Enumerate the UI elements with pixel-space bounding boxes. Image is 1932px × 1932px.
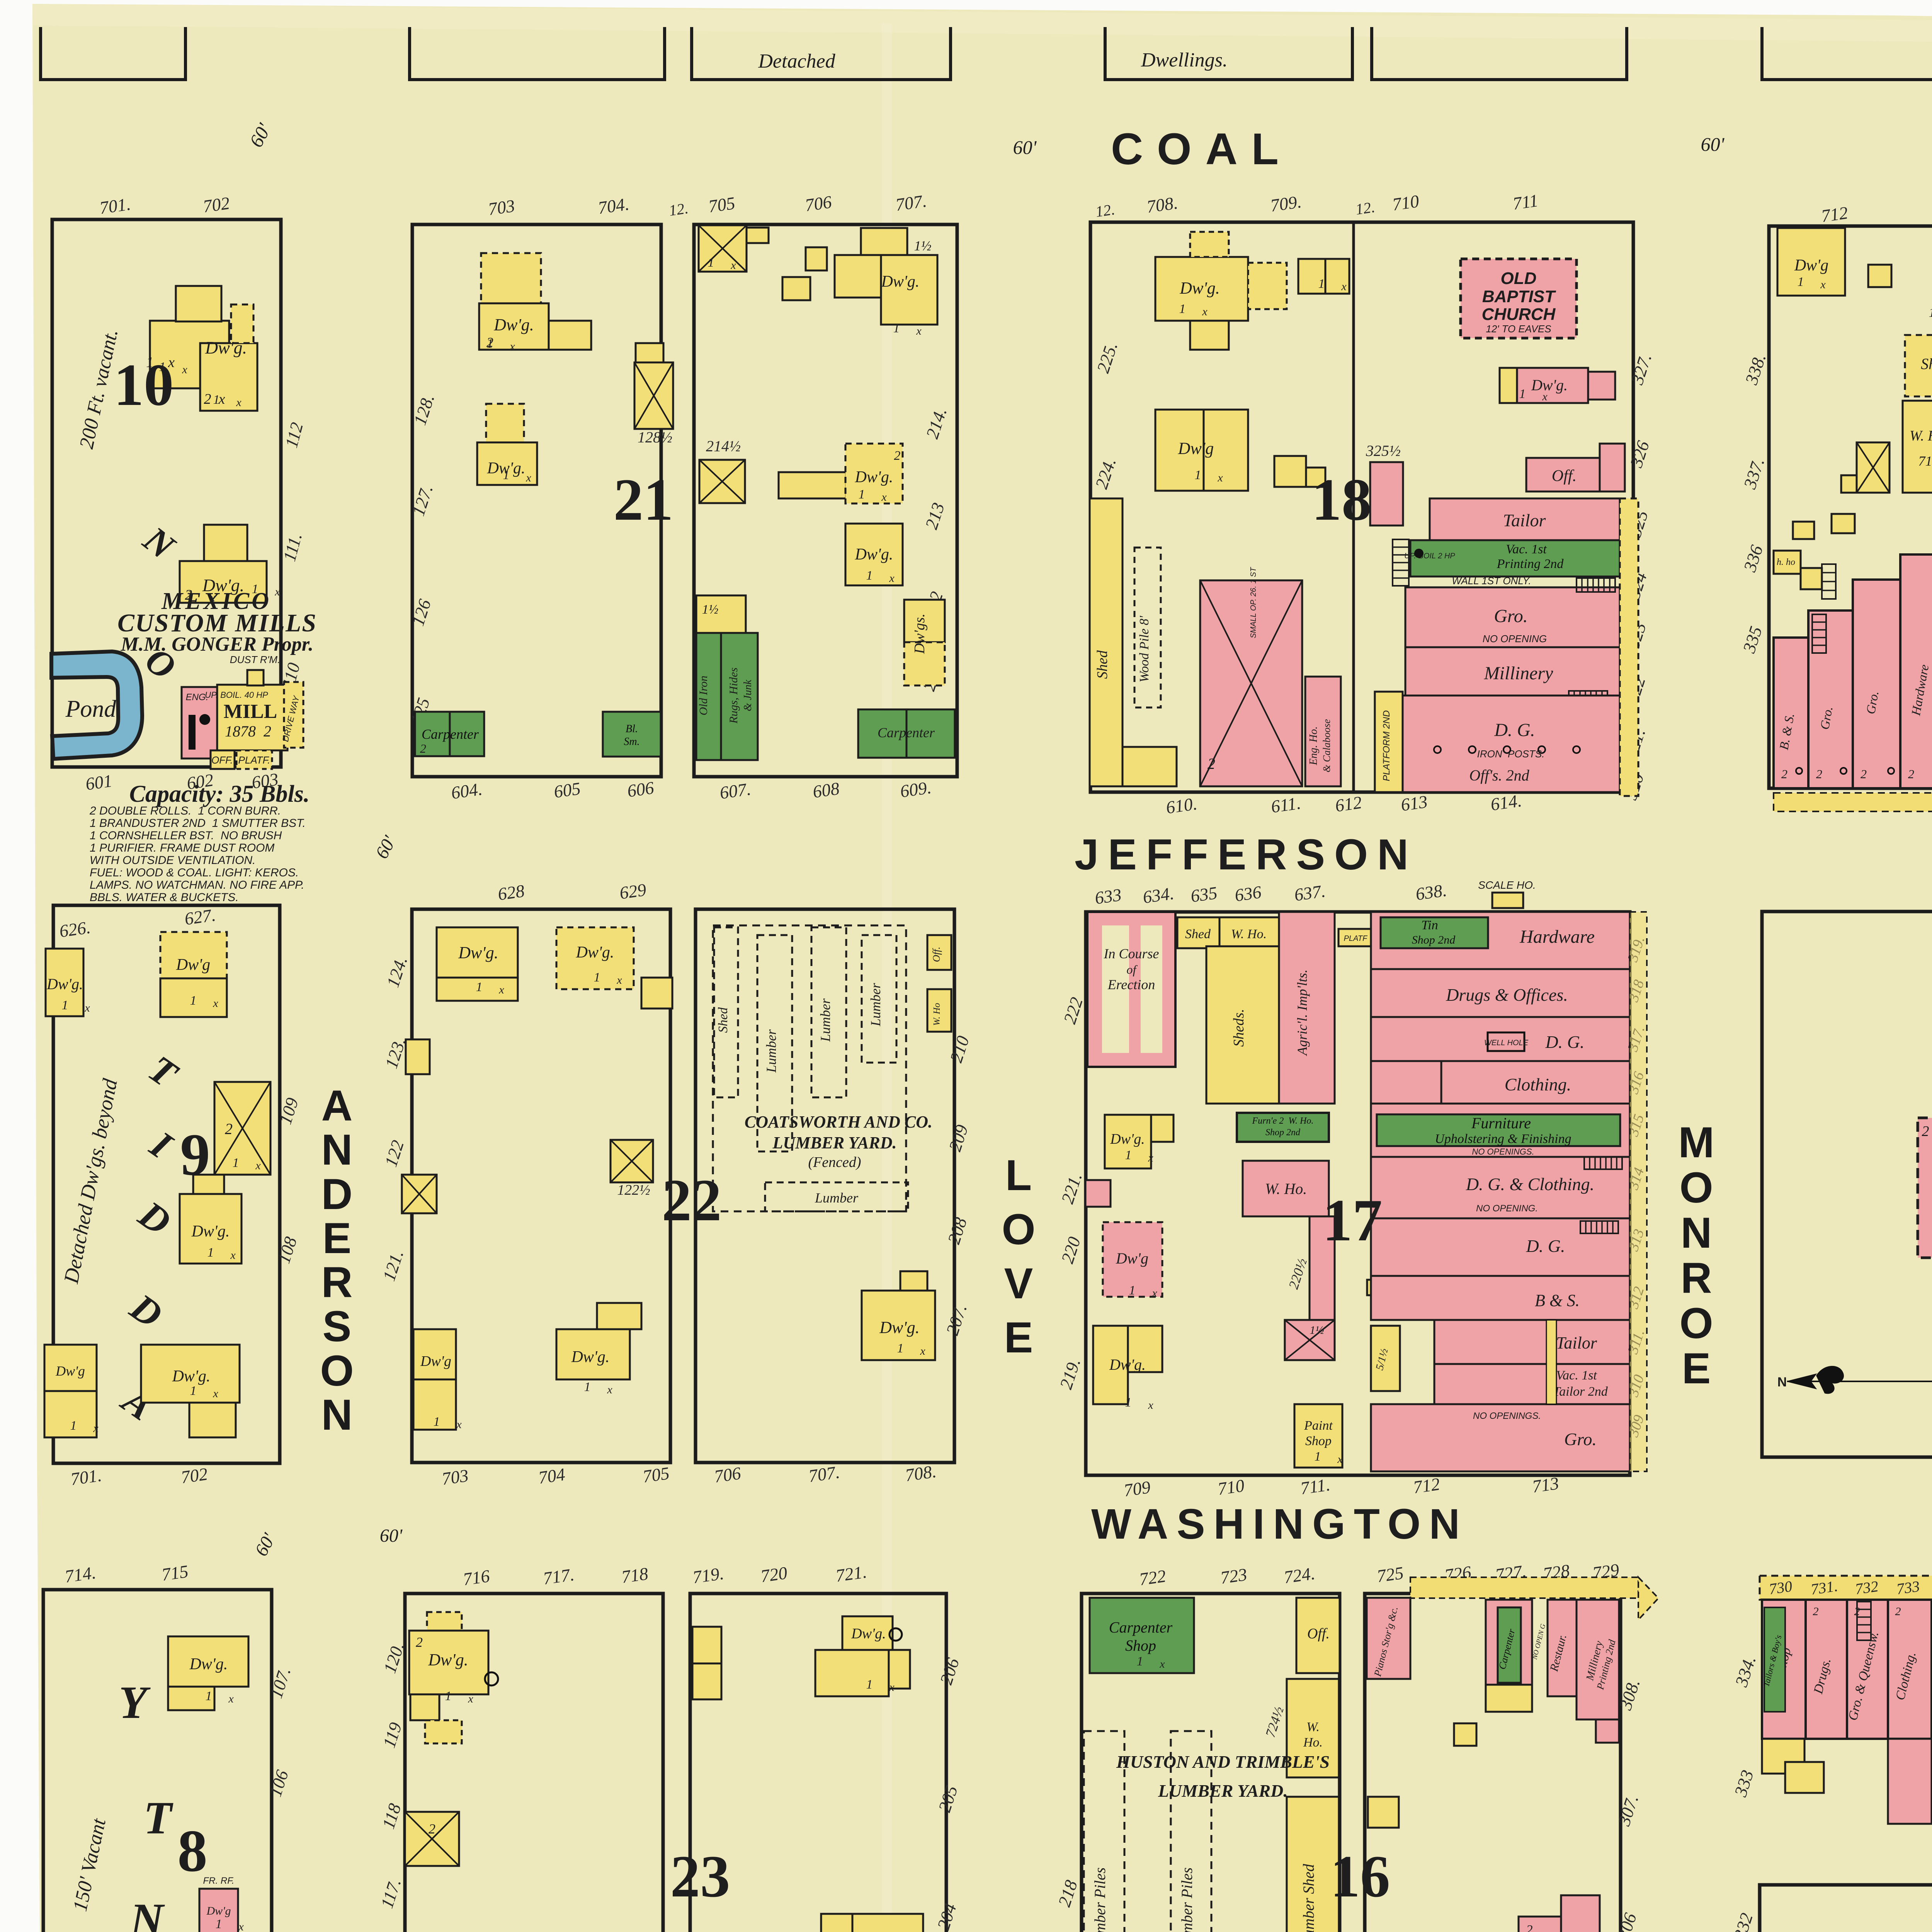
svg-text:710: 710 xyxy=(1391,191,1420,214)
svg-text:NO OPENING: NO OPENING xyxy=(1483,633,1547,645)
svg-text:WELL HOLE: WELL HOLE xyxy=(1484,1039,1529,1047)
svg-text:1878 2: 1878 2 xyxy=(225,723,271,740)
svg-text:OFF.: OFF. xyxy=(211,754,233,766)
svg-text:Dw'g.: Dw'g. xyxy=(571,1348,610,1366)
svg-text:Carpenter: Carpenter xyxy=(1109,1619,1173,1636)
svg-text:Off.: Off. xyxy=(1307,1626,1330,1642)
svg-text:MILL: MILL xyxy=(224,701,277,723)
svg-text:WALL 1ST ONLY.: WALL 1ST ONLY. xyxy=(1452,575,1531,587)
svg-text:Bl.: Bl. xyxy=(626,723,638,735)
svg-text:22: 22 xyxy=(662,1167,722,1233)
svg-text:705: 705 xyxy=(707,193,736,216)
svg-text:LAMPS. NO WATCHMAN. NO FIRE AP: LAMPS. NO WATCHMAN. NO FIRE APP. xyxy=(90,879,304,891)
svg-text:x: x xyxy=(213,1387,218,1400)
svg-text:Dw'g: Dw'g xyxy=(1178,439,1214,458)
svg-text:732: 732 xyxy=(1854,1577,1879,1598)
svg-text:Shed: Shed xyxy=(1185,927,1211,941)
svg-text:Dw'g: Dw'g xyxy=(55,1363,85,1379)
svg-text:L: L xyxy=(1005,1151,1032,1199)
svg-text:R: R xyxy=(1681,1254,1712,1302)
svg-text:N: N xyxy=(1777,1375,1787,1389)
svg-text:D. G.: D. G. xyxy=(1526,1236,1565,1256)
svg-text:2: 2 xyxy=(1816,767,1822,781)
svg-text:1: 1 xyxy=(1315,1449,1321,1464)
svg-text:M: M xyxy=(1678,1118,1714,1167)
svg-text:Shed: Shed xyxy=(1094,650,1111,679)
svg-text:x: x xyxy=(920,1345,925,1357)
svg-text:1: 1 xyxy=(487,337,493,351)
svg-text:Dw'g: Dw'g xyxy=(420,1353,451,1369)
svg-text:1: 1 xyxy=(893,321,900,335)
svg-text:16: 16 xyxy=(1330,1843,1390,1910)
svg-text:1: 1 xyxy=(1129,1283,1136,1298)
svg-text:NO OPENINGS.: NO OPENINGS. xyxy=(1472,1147,1534,1156)
svg-text:D. G. & Clothing.: D. G. & Clothing. xyxy=(1466,1174,1594,1194)
svg-text:1: 1 xyxy=(503,468,510,482)
svg-text:E: E xyxy=(1682,1344,1711,1393)
svg-text:x: x xyxy=(230,1249,236,1262)
svg-text:725: 725 xyxy=(1376,1563,1405,1586)
svg-text:1: 1 xyxy=(584,1380,591,1394)
svg-text:x: x xyxy=(498,983,504,996)
svg-text:1: 1 xyxy=(62,998,68,1012)
svg-text:128½: 128½ xyxy=(638,429,672,446)
svg-text:Tailor: Tailor xyxy=(1503,510,1546,530)
svg-text:(Fenced): (Fenced) xyxy=(808,1154,861,1170)
svg-text:x: x xyxy=(916,325,922,337)
svg-text:x: x xyxy=(730,259,736,272)
svg-text:712: 712 xyxy=(1820,203,1849,226)
svg-text:Shop 2nd: Shop 2nd xyxy=(1412,934,1456,946)
svg-text:1: 1 xyxy=(866,1677,873,1692)
svg-text:x: x xyxy=(1151,1287,1157,1299)
svg-text:713: 713 xyxy=(1531,1473,1560,1497)
svg-text:x: x xyxy=(1341,280,1347,293)
svg-text:635: 635 xyxy=(1189,883,1218,906)
svg-text:CHURCH: CHURCH xyxy=(1482,305,1556,324)
svg-text:Detached: Detached xyxy=(758,50,835,72)
svg-text:Dw'g.: Dw'g. xyxy=(851,1626,886,1642)
svg-text:8: 8 xyxy=(177,1818,207,1884)
svg-text:Agric'l. Imp'lts.: Agric'l. Imp'lts. xyxy=(1294,969,1310,1056)
svg-text:2: 2 xyxy=(1207,755,1215,772)
svg-text:Carpenter: Carpenter xyxy=(422,726,479,742)
svg-text:1: 1 xyxy=(190,993,197,1008)
svg-text:2: 2 xyxy=(420,742,426,755)
svg-text:722: 722 xyxy=(1138,1566,1167,1589)
svg-text:608: 608 xyxy=(811,779,840,802)
svg-text:12.: 12. xyxy=(668,199,689,219)
svg-text:2 DOUBLE ROLLS. 1 CORN BURR.: 2 DOUBLE ROLLS. 1 CORN BURR. xyxy=(89,804,281,817)
svg-text:Lumber: Lumber xyxy=(815,1190,859,1206)
svg-text:1: 1 xyxy=(1137,1654,1143,1668)
svg-text:x: x xyxy=(209,591,215,604)
svg-text:1: 1 xyxy=(213,393,220,407)
svg-text:O: O xyxy=(1679,1299,1713,1347)
svg-text:730: 730 xyxy=(1768,1577,1793,1598)
svg-text:1: 1 xyxy=(476,980,483,994)
svg-text:NO OPENING.: NO OPENING. xyxy=(1476,1203,1538,1214)
svg-text:1: 1 xyxy=(1929,306,1932,320)
svg-text:10: 10 xyxy=(114,352,174,418)
svg-text:O: O xyxy=(1679,1163,1713,1212)
svg-text:1 CORNSHELLER BST. NO BRUSH: 1 CORNSHELLER BST. NO BRUSH xyxy=(90,829,282,842)
svg-text:Shed: Shed xyxy=(1921,355,1932,372)
svg-text:711: 711 xyxy=(1512,190,1539,214)
svg-text:Capacity: 35 Bbls.: Capacity: 35 Bbls. xyxy=(129,781,310,807)
svg-text:Sheds.: Sheds. xyxy=(1231,1009,1247,1047)
svg-text:Shop 2nd: Shop 2nd xyxy=(1265,1128,1301,1138)
svg-text:Dw'g.: Dw'g. xyxy=(191,1223,230,1240)
svg-text:628: 628 xyxy=(497,881,526,904)
svg-text:709: 709 xyxy=(1122,1477,1151,1500)
svg-text:636: 636 xyxy=(1233,882,1262,905)
svg-text:Upholstering & Finishing: Upholstering & Finishing xyxy=(1435,1132,1571,1146)
svg-text:Dw'g.: Dw'g. xyxy=(576,944,614,961)
svg-text:Shed: Shed xyxy=(716,1007,730,1033)
svg-text:2: 2 xyxy=(1861,767,1867,781)
svg-text:Dw'g.: Dw'g. xyxy=(493,315,534,334)
svg-text:In Course: In Course xyxy=(1104,946,1159,961)
svg-text:Paint: Paint xyxy=(1304,1418,1333,1433)
svg-text:1 PURIFIER. FRAME DUST ROOM: 1 PURIFIER. FRAME DUST ROOM xyxy=(90,842,274,854)
svg-text:Furniture: Furniture xyxy=(1471,1114,1531,1132)
svg-text:Eng. Ho.: Eng. Ho. xyxy=(1308,726,1320,765)
svg-text:COATSWORTH AND CO.: COATSWORTH AND CO. xyxy=(745,1112,932,1131)
svg-text:Lumber: Lumber xyxy=(818,998,833,1042)
svg-text:Gro.: Gro. xyxy=(1564,1429,1597,1449)
svg-text:Dw'g.: Dw'g. xyxy=(855,546,893,563)
svg-text:D. G.: D. G. xyxy=(1545,1032,1585,1052)
svg-text:D: D xyxy=(321,1170,353,1218)
svg-text:BBLS. WATER & BUCKETS.: BBLS. WATER & BUCKETS. xyxy=(90,891,239,904)
svg-text:Dw'g: Dw'g xyxy=(206,1905,231,1917)
svg-text:1½: 1½ xyxy=(914,238,932,253)
svg-text:706: 706 xyxy=(713,1463,742,1486)
svg-text:Dw'g: Dw'g xyxy=(1794,257,1828,274)
svg-text:Dw'g.: Dw'g. xyxy=(855,468,893,486)
svg-text:x: x xyxy=(255,1159,261,1172)
svg-text:N: N xyxy=(1681,1209,1712,1257)
svg-text:x: x xyxy=(1820,278,1826,291)
svg-text:Dw'g.: Dw'g. xyxy=(189,1655,228,1673)
svg-text:712: 712 xyxy=(1412,1474,1441,1497)
svg-text:2: 2 xyxy=(416,1634,423,1650)
svg-text:PLATFORM 2ND: PLATFORM 2ND xyxy=(1381,710,1392,781)
svg-text:Lumber Piles: Lumber Piles xyxy=(1091,1867,1109,1932)
svg-text:WASHINGTON: WASHINGTON xyxy=(1091,1500,1468,1548)
svg-text:Furn'e 2 W. Ho.: Furn'e 2 W. Ho. xyxy=(1252,1116,1314,1126)
svg-text:716: 716 xyxy=(462,1566,491,1589)
svg-text:Shop: Shop xyxy=(1125,1637,1156,1654)
svg-text:V: V xyxy=(1004,1259,1033,1308)
svg-text:611.: 611. xyxy=(1270,793,1302,816)
svg-text:601: 601 xyxy=(84,771,113,794)
svg-text:O: O xyxy=(1002,1205,1035,1253)
svg-text:Dw'g.: Dw'g. xyxy=(1110,1131,1145,1147)
svg-text:Off's. 2nd: Off's. 2nd xyxy=(1469,767,1529,784)
svg-text:Shop: Shop xyxy=(1305,1434,1332,1448)
svg-text:N: N xyxy=(321,1126,353,1174)
svg-text:Dw'g: Dw'g xyxy=(1116,1250,1148,1267)
svg-text:x: x xyxy=(228,1692,234,1705)
svg-text:Rugs, Hides: Rugs, Hides xyxy=(727,668,740,724)
svg-text:1: 1 xyxy=(207,1245,214,1260)
svg-text:x: x xyxy=(238,1920,244,1932)
svg-text:1: 1 xyxy=(897,1341,904,1355)
svg-text:h. ho: h. ho xyxy=(1777,557,1795,567)
svg-text:18: 18 xyxy=(1312,466,1372,533)
svg-text:E: E xyxy=(1004,1313,1033,1362)
svg-text:Dw'g: Dw'g xyxy=(176,956,210,974)
svg-text:1: 1 xyxy=(1125,1148,1132,1162)
svg-text:x: x xyxy=(1337,1453,1343,1466)
svg-text:x: x xyxy=(881,491,887,503)
svg-text:Dw'g.: Dw'g. xyxy=(1109,1356,1146,1373)
svg-text:Lumber: Lumber xyxy=(868,983,883,1027)
svg-text:x: x xyxy=(182,363,187,376)
svg-text:21: 21 xyxy=(614,466,673,533)
svg-text:122½: 122½ xyxy=(617,1182,650,1198)
svg-text:x: x xyxy=(1217,471,1223,484)
svg-text:1: 1 xyxy=(1519,387,1526,401)
svg-text:711.: 711. xyxy=(1299,1475,1331,1498)
svg-text:60': 60' xyxy=(380,1526,403,1546)
svg-text:Dw'g.: Dw'g. xyxy=(1179,279,1220,298)
svg-text:N: N xyxy=(321,1391,353,1439)
svg-text:O: O xyxy=(320,1347,354,1395)
svg-text:FUEL: WOOD & COAL. LIGHT: KERO: FUEL: WOOD & COAL. LIGHT: KEROS. xyxy=(90,866,299,879)
svg-text:x: x xyxy=(1542,390,1548,403)
svg-text:1: 1 xyxy=(708,255,714,270)
svg-text:x: x xyxy=(509,340,515,353)
svg-text:x: x xyxy=(1148,1399,1153,1412)
svg-text:& Calaboose: & Calaboose xyxy=(1321,719,1332,772)
svg-text:Y: Y xyxy=(119,1677,151,1728)
svg-text:Lumber Shed: Lumber Shed xyxy=(1300,1864,1317,1932)
svg-text:606: 606 xyxy=(626,778,655,801)
svg-text:W. Ho.: W. Ho. xyxy=(1265,1180,1307,1197)
svg-text:W.: W. xyxy=(1306,1720,1320,1734)
svg-text:2: 2 xyxy=(1895,1605,1901,1618)
svg-text:Carpenter: Carpenter xyxy=(878,725,935,740)
svg-text:Dw'g.: Dw'g. xyxy=(46,975,83,993)
svg-text:x: x xyxy=(1202,305,1207,318)
svg-text:1: 1 xyxy=(1195,468,1201,482)
svg-text:1: 1 xyxy=(1179,302,1186,316)
svg-text:Dwellings.: Dwellings. xyxy=(1141,49,1228,71)
svg-text:Tailor 2nd: Tailor 2nd xyxy=(1553,1384,1608,1399)
svg-text:Pond: Pond xyxy=(65,696,117,722)
svg-text:Vac. 1st: Vac. 1st xyxy=(1556,1368,1597,1383)
svg-text:1: 1 xyxy=(434,1415,440,1429)
svg-text:PLATF.: PLATF. xyxy=(238,754,270,766)
svg-text:x: x xyxy=(889,572,895,585)
svg-text:1½: 1½ xyxy=(1310,1324,1324,1337)
svg-text:702: 702 xyxy=(202,193,231,216)
svg-text:FR. RF.: FR. RF. xyxy=(203,1876,235,1886)
svg-text:Lumber Piles: Lumber Piles xyxy=(1178,1867,1196,1932)
svg-text:17: 17 xyxy=(1323,1187,1383,1253)
svg-text:E: E xyxy=(323,1214,352,1262)
svg-text:702: 702 xyxy=(180,1464,209,1487)
svg-text:704: 704 xyxy=(537,1464,566,1488)
svg-text:UP. BOIL. 40 HP: UP. BOIL. 40 HP xyxy=(205,690,268,700)
svg-text:W. Ho.: W. Ho. xyxy=(1231,927,1267,941)
svg-text:1: 1 xyxy=(866,568,873,583)
svg-text:Drugs & Offices.: Drugs & Offices. xyxy=(1446,985,1568,1005)
svg-text:2: 2 xyxy=(1813,1605,1819,1618)
svg-text:Dw'gs.: Dw'gs. xyxy=(912,614,928,654)
svg-text:2: 2 xyxy=(1922,1123,1929,1139)
svg-text:Sm.: Sm. xyxy=(624,736,639,748)
svg-text:1: 1 xyxy=(216,1917,222,1931)
svg-text:Erection: Erection xyxy=(1107,977,1155,992)
svg-text:Dw'g.: Dw'g. xyxy=(428,1650,468,1669)
svg-text:N: N xyxy=(129,1894,165,1932)
svg-text:Millinery: Millinery xyxy=(1484,663,1553,684)
svg-text:1 BRANDUSTER 2ND 1 SMUTTER BS: 1 BRANDUSTER 2ND 1 SMUTTER BST. xyxy=(90,817,306,830)
svg-text:x: x xyxy=(93,1422,99,1435)
svg-text:629: 629 xyxy=(618,880,647,903)
svg-text:SMALL OP. 26. 1 ST: SMALL OP. 26. 1 ST xyxy=(1249,566,1258,638)
svg-text:COAL: COAL xyxy=(1111,124,1293,174)
svg-text:& Junk: & Junk xyxy=(742,680,754,711)
svg-text:D. G.: D. G. xyxy=(1494,720,1535,740)
svg-text:W. Ho: W. Ho xyxy=(932,1003,942,1026)
svg-text:PLATF: PLATF xyxy=(1344,934,1368,943)
svg-text:Printing 2nd: Printing 2nd xyxy=(1497,557,1564,571)
svg-text:705: 705 xyxy=(641,1463,670,1486)
svg-text:LUMBER YARD.: LUMBER YARD. xyxy=(1158,1781,1288,1801)
svg-text:12.: 12. xyxy=(1354,198,1376,218)
svg-text:2: 2 xyxy=(894,449,901,463)
svg-text:605: 605 xyxy=(553,779,582,802)
svg-text:Dw'g.: Dw'g. xyxy=(458,943,498,962)
svg-text:M.M. GONGER Propr.: M.M. GONGER Propr. xyxy=(121,633,313,655)
svg-text:Dw'g.: Dw'g. xyxy=(879,1318,920,1337)
svg-text:NO OPENINGS.: NO OPENINGS. xyxy=(1473,1411,1541,1421)
svg-text:LUMBER YARD.: LUMBER YARD. xyxy=(772,1133,896,1152)
svg-text:T: T xyxy=(143,1792,173,1844)
svg-text:OLD: OLD xyxy=(1501,269,1537,288)
svg-text:x: x xyxy=(1148,1151,1153,1164)
svg-text:BAPTIST: BAPTIST xyxy=(1482,287,1556,306)
svg-text:325½: 325½ xyxy=(1366,442,1401,459)
svg-text:715: 715 xyxy=(160,1561,189,1585)
svg-text:1: 1 xyxy=(1318,277,1325,291)
svg-text:Off.: Off. xyxy=(931,947,942,962)
svg-text:HUSTON AND TRIMBLE'S: HUSTON AND TRIMBLE'S xyxy=(1116,1752,1330,1772)
svg-text:R: R xyxy=(321,1258,353,1306)
svg-text:1: 1 xyxy=(187,588,194,602)
svg-text:DUST R'M.: DUST R'M. xyxy=(230,654,281,665)
svg-text:x: x xyxy=(274,585,280,598)
svg-text:JEFFERSON: JEFFERSON xyxy=(1075,830,1418,879)
svg-text:2: 2 xyxy=(1908,767,1914,781)
svg-text:706: 706 xyxy=(804,192,833,215)
svg-text:2: 2 xyxy=(1781,767,1787,781)
svg-text:Hardware: Hardware xyxy=(1519,927,1595,947)
svg-text:WITH OUTSIDE VENTILATION.: WITH OUTSIDE VENTILATION. xyxy=(90,854,255,867)
svg-text:12' TO EAVES: 12' TO EAVES xyxy=(1486,323,1551,335)
svg-text:Tailor: Tailor xyxy=(1556,1333,1597,1352)
svg-text:1: 1 xyxy=(445,1689,452,1703)
svg-text:x: x xyxy=(607,1383,612,1396)
svg-text:Old Iron: Old Iron xyxy=(697,675,710,715)
svg-text:710: 710 xyxy=(1216,1476,1245,1499)
svg-text:9: 9 xyxy=(180,1121,210,1188)
svg-text:703: 703 xyxy=(440,1466,469,1489)
svg-text:x: x xyxy=(1159,1658,1165,1670)
svg-text:1: 1 xyxy=(233,1156,239,1170)
svg-text:23: 23 xyxy=(670,1843,730,1910)
svg-text:B & S.: B & S. xyxy=(1535,1291,1580,1310)
svg-text:713½: 713½ xyxy=(1918,453,1932,469)
svg-text:x: x xyxy=(456,1418,462,1431)
svg-text:2: 2 xyxy=(225,1120,233,1138)
svg-text:1: 1 xyxy=(1798,275,1804,289)
svg-text:W. Ho's.: W. Ho's. xyxy=(1910,428,1932,444)
svg-text:Wood Pile 8': Wood Pile 8' xyxy=(1137,616,1151,682)
svg-text:1: 1 xyxy=(859,487,865,502)
svg-text:1: 1 xyxy=(252,582,259,596)
svg-text:UP. BOIL 2 HP: UP. BOIL 2 HP xyxy=(1404,552,1455,560)
svg-text:1: 1 xyxy=(1125,1395,1132,1410)
svg-text:x: x xyxy=(526,471,531,484)
svg-text:Ho.: Ho. xyxy=(1303,1735,1323,1750)
svg-text:2: 2 xyxy=(429,1821,435,1837)
svg-text:723: 723 xyxy=(1219,1565,1248,1588)
svg-text:SCALE HO.: SCALE HO. xyxy=(1478,879,1536,891)
svg-text:214½: 214½ xyxy=(706,437,741,455)
svg-text:703: 703 xyxy=(487,196,516,219)
svg-text:733: 733 xyxy=(1895,1577,1921,1598)
svg-text:x: x xyxy=(213,997,218,1010)
svg-text:x: x xyxy=(84,1002,90,1014)
svg-text:S: S xyxy=(323,1302,352,1350)
svg-text:1: 1 xyxy=(70,1418,77,1433)
svg-text:Lumber: Lumber xyxy=(764,1029,779,1073)
svg-text:Vac. 1st: Vac. 1st xyxy=(1506,542,1547,556)
svg-text:1: 1 xyxy=(190,1384,197,1398)
svg-text:of: of xyxy=(1127,963,1138,976)
svg-text:Dw'g.: Dw'g. xyxy=(1531,376,1568,394)
svg-text:1½: 1½ xyxy=(702,602,719,617)
svg-text:612: 612 xyxy=(1334,793,1363,816)
svg-text:x: x xyxy=(236,396,241,409)
svg-text:Dw'g.: Dw'g. xyxy=(205,338,247,357)
svg-text:633: 633 xyxy=(1094,885,1122,908)
svg-text:Dw'g.: Dw'g. xyxy=(172,1367,211,1385)
svg-text:Gro.: Gro. xyxy=(1494,606,1528,626)
svg-text:Dw'g.: Dw'g. xyxy=(881,273,920,291)
svg-text:Off.: Off. xyxy=(1552,467,1577,485)
svg-text:720: 720 xyxy=(759,1563,788,1586)
svg-text:12.: 12. xyxy=(1094,201,1116,221)
svg-text:A: A xyxy=(321,1082,353,1130)
svg-text:60': 60' xyxy=(1701,133,1725,155)
svg-text:x: x xyxy=(468,1692,473,1705)
svg-text:60': 60' xyxy=(1013,136,1037,158)
svg-text:1: 1 xyxy=(206,1689,212,1703)
svg-text:613: 613 xyxy=(1400,792,1429,815)
svg-text:1: 1 xyxy=(594,970,600,985)
svg-text:x: x xyxy=(616,974,622,986)
svg-text:718: 718 xyxy=(620,1564,649,1587)
svg-text:Tin: Tin xyxy=(1421,918,1438,932)
svg-text:x: x xyxy=(889,1681,895,1694)
